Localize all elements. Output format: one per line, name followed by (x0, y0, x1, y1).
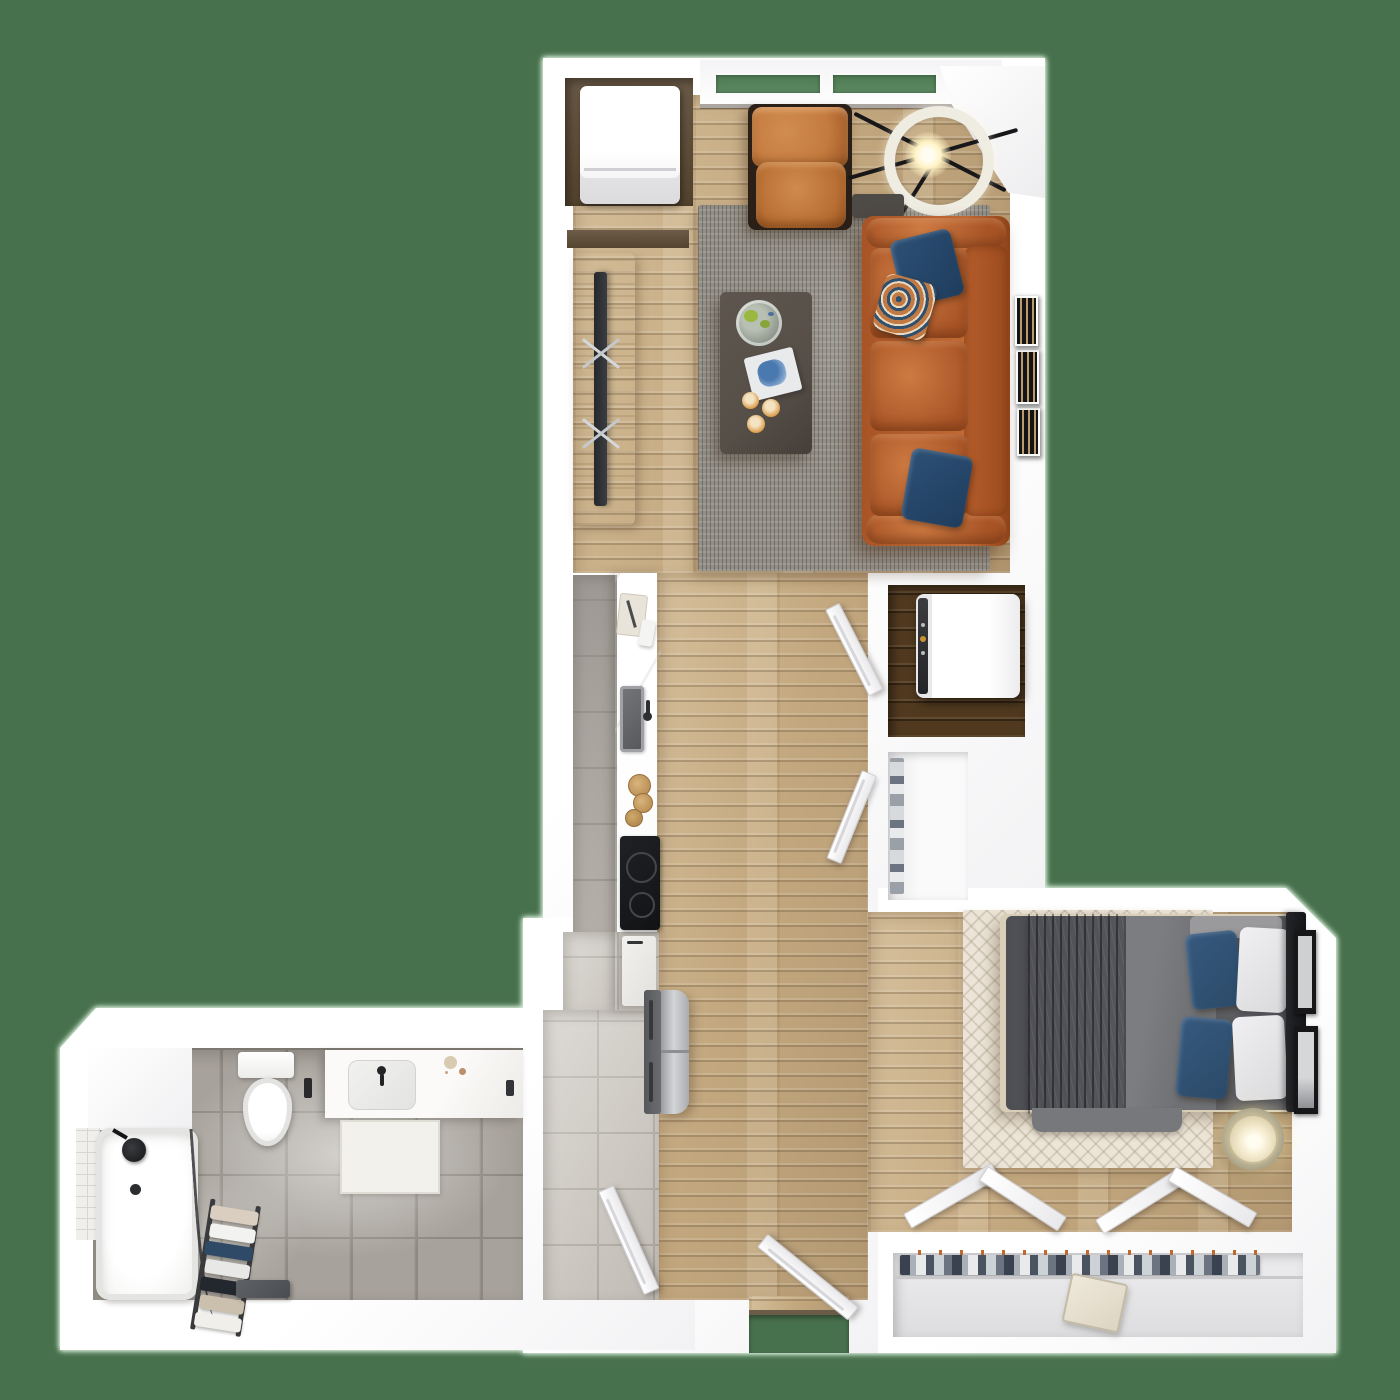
kitchen-tile-strip (573, 575, 617, 935)
cooktop-burner (629, 892, 655, 918)
stacked-washer-seam (584, 168, 676, 171)
washer-dryer-unit (916, 594, 1020, 698)
shower-head (122, 1138, 146, 1162)
decor-plate-greens (744, 310, 758, 322)
bedroom-frame-photo (1298, 1032, 1314, 1108)
towel (209, 1223, 257, 1244)
refrigerator-door-seam (661, 1050, 689, 1053)
decor-cup (762, 399, 780, 417)
washer-control-knob (920, 636, 926, 642)
vanity-vase (444, 1056, 457, 1069)
bed-sheet-trail (1032, 1108, 1182, 1132)
refrigerator-handle (649, 1000, 653, 1040)
table-lamp-glowing (1228, 1114, 1278, 1164)
scene-background (0, 0, 1400, 1400)
toilet-tank (238, 1052, 294, 1078)
wall-art-slats (1014, 295, 1039, 347)
kitchen-sink (620, 686, 644, 752)
linen-shelf-items (890, 758, 904, 894)
throw-blanket (1028, 914, 1124, 1114)
cooktop-burner (626, 852, 657, 883)
entry-opening-outside (749, 1315, 849, 1353)
hanging-clothes (900, 1255, 1260, 1275)
bathroom-wall-block (88, 1048, 192, 1130)
sofa-seat-cushion (870, 341, 968, 431)
stacked-washer (580, 86, 680, 204)
window-glass-left (714, 73, 822, 95)
towel (194, 1312, 243, 1333)
cutting-board-round (625, 809, 643, 827)
bath-mat-diamond (340, 1120, 440, 1194)
pendant-bulb-glow (905, 132, 951, 178)
sofa-side-table (852, 194, 904, 218)
vanity-faucet-spout (380, 1074, 384, 1086)
tub-drain (130, 1184, 141, 1195)
wall-art-slats (1016, 407, 1041, 457)
window-glass-right (831, 73, 938, 95)
decor-plate (736, 300, 782, 346)
hall-floor (657, 573, 868, 1300)
lounge-chair-back-cushion (752, 107, 848, 167)
decor-cup (742, 392, 759, 409)
floor-plan (0, 0, 1400, 1400)
toilet-paper-holder (304, 1078, 312, 1098)
tv (594, 272, 607, 506)
throw-pillow-navy-bottom (900, 447, 974, 529)
bathtub (96, 1128, 198, 1300)
storage-cubby (567, 230, 689, 248)
bed-pillow-navy (1184, 929, 1244, 1010)
refrigerator-handle (649, 1062, 653, 1102)
vanity-bottle (506, 1080, 514, 1096)
wall-art-slats (1015, 349, 1040, 405)
bed-pillow-white (1232, 1015, 1288, 1102)
sink-faucet-head (643, 712, 652, 721)
bedroom-frame-photo (1298, 936, 1312, 1008)
washer-control-panel (918, 598, 928, 694)
bath-bench (236, 1280, 290, 1298)
cabinet-handle (627, 941, 643, 944)
bed-pillow-navy (1175, 1016, 1234, 1100)
towel (204, 1259, 251, 1280)
lounge-chair-seat-cushion (756, 162, 846, 228)
bed-pillow-white (1236, 927, 1290, 1014)
decor-cup (747, 415, 765, 433)
